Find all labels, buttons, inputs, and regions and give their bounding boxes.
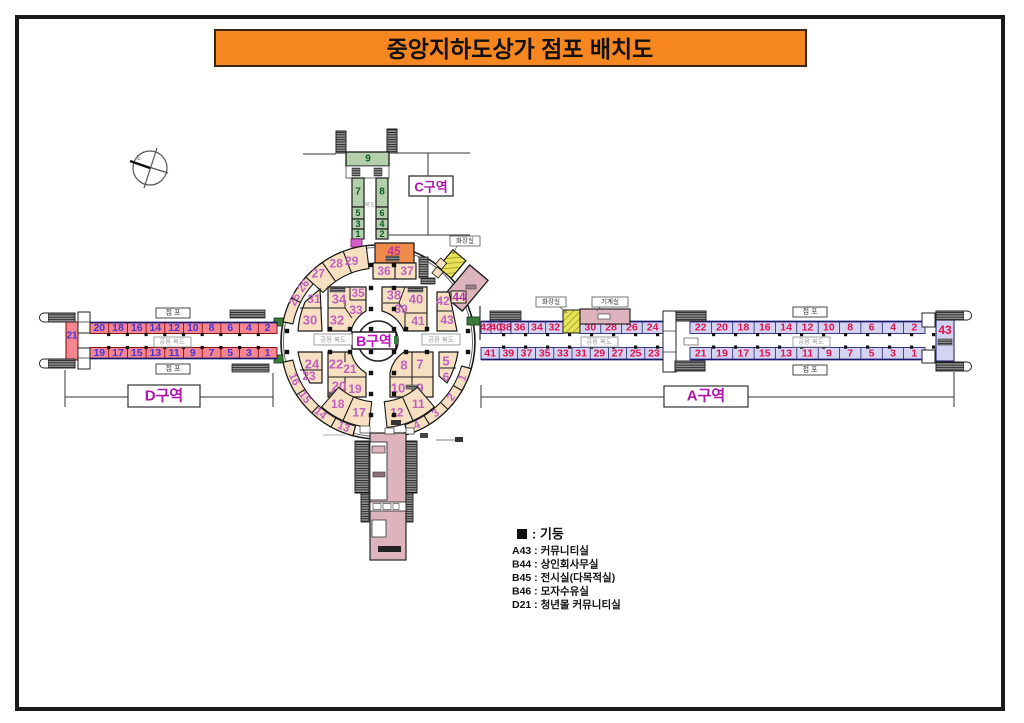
svg-text:7: 7 xyxy=(355,187,361,198)
svg-text:29: 29 xyxy=(593,348,605,360)
svg-text:38: 38 xyxy=(500,322,512,334)
svg-text:7: 7 xyxy=(416,357,423,372)
svg-text:32: 32 xyxy=(330,313,344,328)
svg-text:20: 20 xyxy=(716,322,728,334)
svg-text:A43 : 커뮤니티실: A43 : 커뮤니티실 xyxy=(512,544,589,557)
svg-text:2: 2 xyxy=(265,322,271,334)
svg-text:6: 6 xyxy=(443,370,450,384)
svg-text:27: 27 xyxy=(312,266,326,280)
svg-text:6: 6 xyxy=(869,322,875,334)
svg-text:19: 19 xyxy=(348,382,362,396)
svg-text:점 포: 점 포 xyxy=(803,308,818,316)
svg-text:공용 복도: 공용 복도 xyxy=(320,336,346,344)
svg-text:41: 41 xyxy=(484,348,496,360)
svg-text:5: 5 xyxy=(869,348,875,360)
svg-text:2: 2 xyxy=(911,322,917,334)
svg-text:8: 8 xyxy=(400,358,407,373)
svg-text:6: 6 xyxy=(379,208,384,218)
svg-text:39: 39 xyxy=(502,348,514,360)
svg-text:18: 18 xyxy=(738,322,750,334)
svg-text:13: 13 xyxy=(780,348,792,360)
svg-text:14: 14 xyxy=(780,322,792,334)
svg-text:11: 11 xyxy=(169,347,180,359)
svg-text:5: 5 xyxy=(442,354,449,369)
svg-text:36: 36 xyxy=(377,264,391,278)
svg-text:8: 8 xyxy=(379,187,385,198)
svg-text:8: 8 xyxy=(209,322,215,334)
svg-text:22: 22 xyxy=(695,322,707,334)
svg-text:D21 : 청년몰 커뮤니티실: D21 : 청년몰 커뮤니티실 xyxy=(512,598,621,611)
svg-text:29: 29 xyxy=(345,254,359,268)
svg-text:C구역: C구역 xyxy=(414,180,447,195)
svg-text:19: 19 xyxy=(93,347,105,359)
svg-text:35: 35 xyxy=(351,286,365,300)
svg-text:17: 17 xyxy=(112,347,124,359)
svg-text:33: 33 xyxy=(557,348,569,360)
svg-text:복도: 복도 xyxy=(364,202,376,209)
svg-text:2: 2 xyxy=(379,229,384,239)
svg-text:공용 복도: 공용 복도 xyxy=(159,338,185,346)
svg-text:21: 21 xyxy=(66,331,78,342)
svg-text:42: 42 xyxy=(436,294,450,308)
svg-text:B45 : 전시실(다목적실): B45 : 전시실(다목적실) xyxy=(512,571,615,584)
svg-text:11: 11 xyxy=(412,397,425,411)
svg-text:18: 18 xyxy=(112,322,124,334)
svg-text:43: 43 xyxy=(440,313,454,327)
svg-text:37: 37 xyxy=(400,264,414,278)
svg-text:44: 44 xyxy=(452,290,466,304)
svg-text:도: 도 xyxy=(136,155,142,162)
svg-text:12: 12 xyxy=(802,322,814,334)
svg-text:8: 8 xyxy=(847,322,853,334)
svg-text:6: 6 xyxy=(227,322,233,334)
svg-text:33: 33 xyxy=(349,303,363,317)
svg-text:1: 1 xyxy=(265,347,271,359)
svg-text:9: 9 xyxy=(190,347,196,359)
svg-text:13: 13 xyxy=(150,347,162,359)
svg-text:9: 9 xyxy=(365,154,371,165)
svg-text:: 기둥: : 기둥 xyxy=(532,527,564,542)
svg-text:5: 5 xyxy=(355,208,360,218)
svg-text:36: 36 xyxy=(514,322,526,334)
svg-text:A구역: A구역 xyxy=(687,388,725,405)
svg-text:3: 3 xyxy=(355,219,360,229)
svg-text:12: 12 xyxy=(168,322,180,334)
svg-text:28: 28 xyxy=(330,256,344,270)
svg-text:1: 1 xyxy=(911,348,917,360)
svg-text:19: 19 xyxy=(716,348,728,360)
svg-text:22: 22 xyxy=(329,357,343,372)
svg-text:4: 4 xyxy=(379,219,384,229)
svg-text:14: 14 xyxy=(150,322,162,334)
svg-text:D구역: D구역 xyxy=(145,388,183,405)
svg-text:31: 31 xyxy=(307,292,321,306)
svg-text:21: 21 xyxy=(695,348,707,360)
svg-text:기계실: 기계실 xyxy=(601,297,619,306)
svg-text:16: 16 xyxy=(131,322,143,334)
svg-text:5: 5 xyxy=(227,347,233,359)
svg-text:41: 41 xyxy=(411,314,425,328)
svg-text:7: 7 xyxy=(209,347,215,359)
svg-text:43: 43 xyxy=(938,323,952,337)
svg-text:3: 3 xyxy=(890,348,896,360)
svg-text:4: 4 xyxy=(890,322,896,334)
svg-text:10: 10 xyxy=(187,322,199,334)
svg-text:점 포: 점 포 xyxy=(803,366,818,374)
svg-text:10: 10 xyxy=(823,322,835,334)
svg-text:35: 35 xyxy=(539,348,551,360)
svg-text:18: 18 xyxy=(331,397,345,411)
svg-text:31: 31 xyxy=(575,348,587,360)
svg-text:점 포: 점 포 xyxy=(166,309,181,317)
svg-text:화장실: 화장실 xyxy=(456,236,474,245)
svg-text:중앙지하도상가 점포 배치도: 중앙지하도상가 점포 배치도 xyxy=(387,36,654,62)
svg-text:27: 27 xyxy=(612,348,624,360)
svg-text:점 포: 점 포 xyxy=(166,365,181,373)
svg-text:공용 복도: 공용 복도 xyxy=(428,336,454,344)
svg-text:공용 복도: 공용 복도 xyxy=(798,338,824,346)
svg-text:15: 15 xyxy=(759,348,771,360)
svg-text:40: 40 xyxy=(409,292,423,307)
svg-text:3: 3 xyxy=(246,347,252,359)
svg-text:39: 39 xyxy=(394,302,408,316)
svg-text:23: 23 xyxy=(648,348,660,360)
svg-text:30: 30 xyxy=(303,313,317,328)
svg-text:20: 20 xyxy=(93,322,105,334)
svg-text:7: 7 xyxy=(847,348,853,360)
svg-text:25: 25 xyxy=(630,348,642,360)
svg-text:24: 24 xyxy=(647,322,659,334)
svg-text:4: 4 xyxy=(246,322,252,334)
svg-text:15: 15 xyxy=(131,347,143,359)
svg-text:B44 : 상인회사무실: B44 : 상인회사무실 xyxy=(512,558,599,571)
svg-text:21: 21 xyxy=(343,362,357,376)
svg-text:11: 11 xyxy=(802,348,813,360)
svg-text:공용 복도: 공용 복도 xyxy=(586,338,612,346)
svg-text:34: 34 xyxy=(332,292,347,307)
svg-text:17: 17 xyxy=(738,348,750,360)
svg-text:34: 34 xyxy=(531,322,543,334)
svg-text:37: 37 xyxy=(521,348,533,360)
svg-text:9: 9 xyxy=(826,348,832,360)
svg-text:23: 23 xyxy=(302,369,316,383)
svg-text:17: 17 xyxy=(352,406,366,420)
svg-text:B구역: B구역 xyxy=(356,333,392,349)
svg-text:32: 32 xyxy=(548,322,560,334)
svg-text:B46 : 모자수유실: B46 : 모자수유실 xyxy=(512,585,589,598)
svg-text:화장실: 화장실 xyxy=(542,297,560,306)
svg-text:12: 12 xyxy=(390,406,404,420)
svg-text:1: 1 xyxy=(355,229,360,239)
svg-text:16: 16 xyxy=(759,322,771,334)
